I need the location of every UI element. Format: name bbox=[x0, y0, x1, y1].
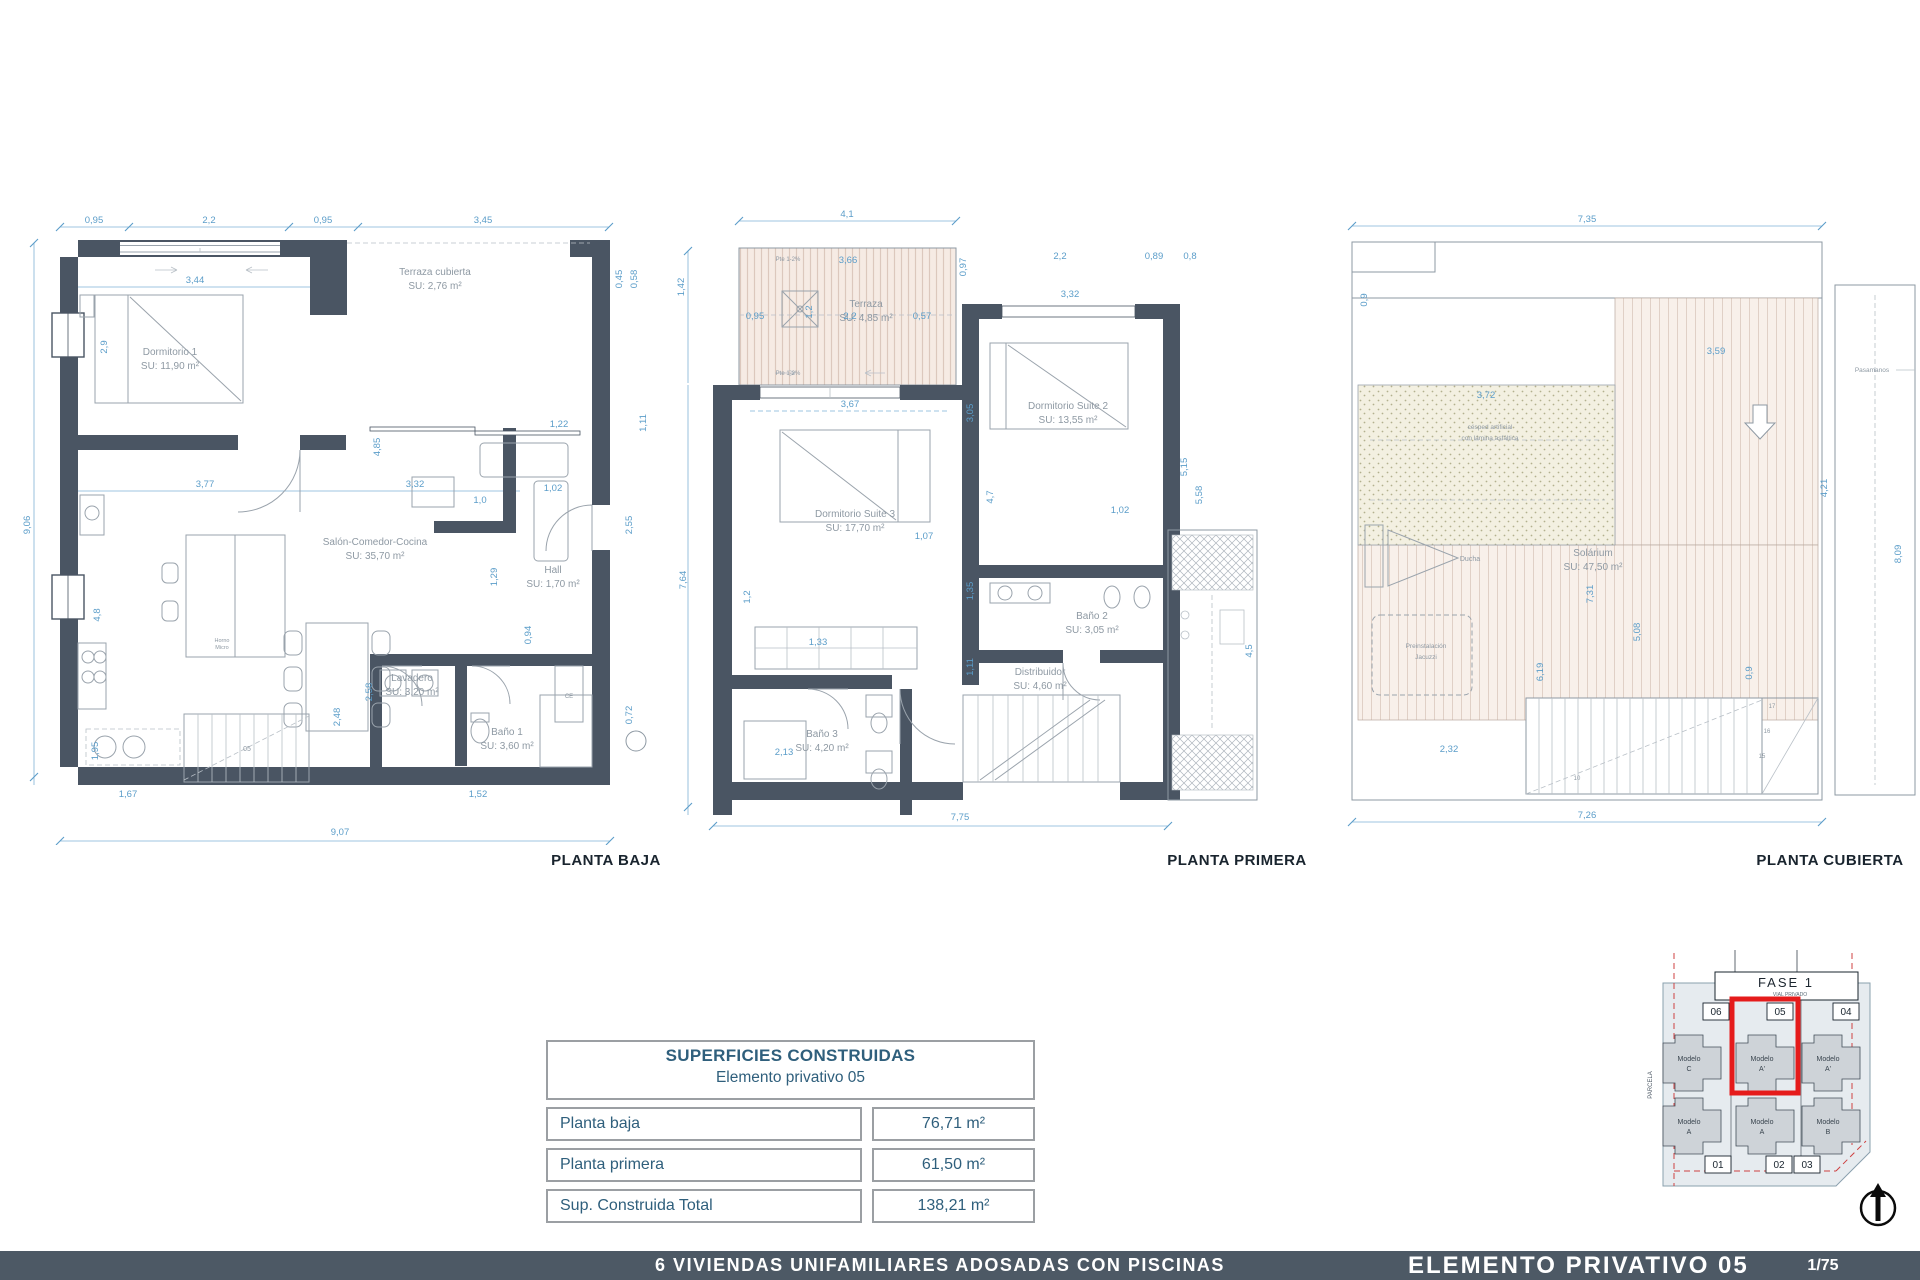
annotation-label: 0,95 bbox=[85, 215, 104, 226]
annotation-label: 10 bbox=[1574, 776, 1581, 782]
annotation-label: Preinstalación bbox=[1406, 643, 1447, 650]
svg-text:A': A' bbox=[1759, 1066, 1765, 1073]
row-label: Planta baja bbox=[546, 1107, 862, 1141]
table-row: Planta primera 61,50 m² bbox=[546, 1148, 1035, 1182]
row-value: 138,21 m² bbox=[872, 1189, 1035, 1223]
svg-text:Modelo: Modelo bbox=[1678, 1056, 1701, 1063]
annotation-label: 3,05 bbox=[965, 404, 976, 423]
title-bar: 6 VIVIENDAS UNIFAMILIARES ADOSADAS CON P… bbox=[0, 1251, 1920, 1280]
annotation-label: 1,29 bbox=[489, 568, 500, 587]
annotation-label: 0,94 bbox=[523, 626, 534, 645]
annotation-label: 3,67 bbox=[841, 399, 860, 410]
annotation-label: 4,85 bbox=[372, 438, 383, 457]
row-value: 61,50 m² bbox=[872, 1148, 1035, 1182]
drawing-sheet: { "plans": [ { "title": "PLANTA BAJA", "… bbox=[0, 0, 1920, 1280]
annotation-label: 4,1 bbox=[840, 209, 853, 220]
table-row: Sup. Construida Total 138,21 m² bbox=[546, 1189, 1035, 1223]
annotation-label: 5,15 bbox=[1179, 458, 1190, 477]
annotation-label: 4,8 bbox=[92, 608, 103, 621]
row-label: Sup. Construida Total bbox=[546, 1189, 862, 1223]
svg-text:05: 05 bbox=[1774, 1007, 1786, 1018]
room-area: SU: 47,50 m² bbox=[1564, 562, 1624, 573]
svg-text:Modelo: Modelo bbox=[1817, 1056, 1840, 1063]
areas-table-title: SUPERFICIES CONSTRUIDAS bbox=[548, 1046, 1033, 1066]
svg-text:Modelo: Modelo bbox=[1817, 1119, 1840, 1126]
annotation-label: césped artificial bbox=[1468, 424, 1513, 431]
room-label: Baño 3 bbox=[806, 729, 838, 740]
annotation-label: 7,75 bbox=[951, 812, 970, 823]
annotation-label: 0,8 bbox=[1183, 251, 1196, 262]
svg-text:A': A' bbox=[1825, 1066, 1831, 1073]
room-area: SU: 2,76 m² bbox=[408, 281, 462, 292]
annotation-label: Ducha bbox=[1460, 556, 1480, 563]
room-area: SU: 4,20 m² bbox=[795, 743, 849, 754]
annotation-label: 9,06 bbox=[22, 516, 33, 535]
svg-text:Modelo: Modelo bbox=[1751, 1056, 1774, 1063]
annotation-label: 1,35 bbox=[965, 582, 976, 601]
annotation-label: 0,58 bbox=[629, 270, 640, 289]
annotation-label: 0,95 bbox=[746, 311, 765, 322]
annotation-label: Micro bbox=[215, 645, 228, 651]
side-strip bbox=[1835, 285, 1915, 795]
annotation-label: 4,7 bbox=[985, 490, 996, 503]
annotation-label: 3,59 bbox=[1707, 346, 1726, 357]
room-label: Lavadero bbox=[391, 673, 433, 684]
svg-text:A: A bbox=[1760, 1129, 1765, 1136]
page-number: 1/75 bbox=[1788, 1251, 1858, 1280]
annotation-label: 16 bbox=[1764, 729, 1771, 735]
annotation-label: Pte 1-2% bbox=[776, 371, 801, 377]
svg-text:B: B bbox=[1826, 1129, 1831, 1136]
project-title: 6 VIVIENDAS UNIFAMILIARES ADOSADAS CON P… bbox=[540, 1251, 1340, 1280]
annotation-label: 2,2 bbox=[843, 311, 856, 322]
annotation-label: 0,72 bbox=[624, 706, 635, 725]
annotation-label: 1,07 bbox=[915, 531, 934, 542]
row-value: 76,71 m² bbox=[872, 1107, 1035, 1141]
annotation-label: 0,9 bbox=[1359, 293, 1370, 306]
annotation-label: 9,07 bbox=[331, 827, 350, 838]
annotation-label: 3,77 bbox=[196, 479, 215, 490]
room-label: Baño 2 bbox=[1076, 611, 1108, 622]
site-guides bbox=[1735, 950, 1797, 972]
room-area: SU: 35,70 m² bbox=[346, 551, 406, 562]
annotation-label: CE bbox=[565, 694, 573, 700]
floorplan-planta-cubierta: Solárium SU: 47,50 m² 7,350,93,723,594,2… bbox=[1340, 200, 1920, 850]
svg-text:03: 03 bbox=[1801, 1160, 1813, 1171]
annotation-label: Jacuzzi bbox=[1415, 654, 1437, 661]
annotation-label: 2,58 bbox=[364, 683, 375, 702]
annotation-label: 0,95 bbox=[314, 215, 333, 226]
room-label: Dormitorio Suite 2 bbox=[1028, 401, 1108, 412]
svg-text:Modelo: Modelo bbox=[1678, 1119, 1701, 1126]
room-label: Solárium bbox=[1573, 548, 1612, 559]
annotation-label: 8,09 bbox=[1893, 545, 1904, 564]
annotation-label: 7,35 bbox=[1578, 214, 1597, 225]
annotation-label: 17 bbox=[1769, 704, 1776, 710]
annotation-label: 7,31 bbox=[1585, 585, 1596, 604]
room-label: Terraza cubierta bbox=[399, 267, 471, 278]
stairs bbox=[963, 695, 1120, 782]
annotation-label: 2,32 bbox=[1440, 744, 1459, 755]
room-label: Distribuidor bbox=[1015, 667, 1066, 678]
annotation-label: 2,55 bbox=[624, 516, 635, 535]
annotation-label: 7,26 bbox=[1578, 810, 1597, 821]
plan-title-primera: PLANTA PRIMERA bbox=[1129, 852, 1345, 869]
annotation-label: 0,45 bbox=[614, 270, 625, 289]
room-area: SU: 17,70 m² bbox=[826, 523, 886, 534]
room-label: Terraza bbox=[849, 299, 883, 310]
annotation-label: 2,48 bbox=[332, 708, 343, 727]
annotation-label: 2,13 bbox=[775, 747, 794, 758]
annotation-label: 1,95 bbox=[90, 742, 101, 761]
annotation-label: 1,2 bbox=[804, 305, 815, 318]
annotation-label: 1,33 bbox=[809, 637, 828, 648]
room-area: SU: 1,70 m² bbox=[526, 579, 580, 590]
areas-table-header: SUPERFICIES CONSTRUIDAS Elemento privati… bbox=[546, 1040, 1035, 1100]
annotation-label: 15 bbox=[1759, 754, 1766, 760]
annotation-label: 1,0 bbox=[473, 495, 486, 506]
annotation-label: 5,08 bbox=[1632, 623, 1643, 642]
annotation-label: 1,02 bbox=[1111, 505, 1130, 516]
annotation-label: 4,5 bbox=[1244, 644, 1255, 657]
sheet-title: ELEMENTO PRIVATIVO 05 bbox=[1408, 1251, 1749, 1280]
annotation-label: Pte 1-2% bbox=[776, 257, 801, 263]
annotation-label: 0,97 bbox=[958, 258, 969, 277]
plot-numbers-top: 06 05 04 bbox=[1703, 1003, 1859, 1020]
room-area: SU: 3,20 m² bbox=[385, 687, 439, 698]
room-area: SU: 11,90 m² bbox=[141, 361, 200, 372]
annotation-label: 3,32 bbox=[406, 479, 425, 490]
annotation-label: 4,21 bbox=[1819, 479, 1830, 498]
annotation-label: 3,66 bbox=[839, 255, 858, 266]
room-area: SU: 13,55 m² bbox=[1039, 415, 1099, 426]
annotation-label: Horno bbox=[215, 638, 230, 644]
svg-text:06: 06 bbox=[1710, 1007, 1722, 1018]
table-row: Planta baja 76,71 m² bbox=[546, 1107, 1035, 1141]
row-label: Planta primera bbox=[546, 1148, 862, 1182]
annotation-label: con lámina asfáltica bbox=[1461, 435, 1518, 442]
annotation-label: 0,57 bbox=[913, 311, 932, 322]
annotation-label: 1,2 bbox=[742, 590, 753, 603]
annotation-label: 2,2 bbox=[202, 215, 215, 226]
annotation-label: 1,02 bbox=[544, 483, 563, 494]
annotation-label: 3,72 bbox=[1477, 390, 1496, 401]
room-label: Dormitorio Suite 3 bbox=[815, 509, 895, 520]
fase-label: FASE 1 bbox=[1758, 975, 1814, 990]
areas-table-subtitle: Elemento privativo 05 bbox=[548, 1069, 1033, 1087]
annotation-label: 1,22 bbox=[550, 419, 569, 430]
annotation-label: 1,67 bbox=[119, 789, 138, 800]
annotation-label: 2,9 bbox=[99, 340, 110, 353]
svg-text:02: 02 bbox=[1773, 1160, 1785, 1171]
annotation-label: 5,58 bbox=[1194, 486, 1205, 505]
utility-strip bbox=[1168, 530, 1257, 800]
plan-title-cubierta: PLANTA CUBIERTA bbox=[1745, 852, 1915, 869]
room-label: Hall bbox=[544, 565, 561, 576]
areas-table: SUPERFICIES CONSTRUIDAS Elemento privati… bbox=[546, 1040, 1035, 1223]
annotation-label: 3,32 bbox=[1061, 289, 1080, 300]
annotation-label: 1,42 bbox=[676, 278, 687, 297]
site-key-plan: FASE 1 VIAL PRIVADO 06 05 04 Modelo C Mo… bbox=[1640, 875, 1920, 1255]
annotation-label: 2,2 bbox=[1053, 251, 1066, 262]
svg-text:04: 04 bbox=[1840, 1007, 1852, 1018]
floorplan-planta-primera: Terraza SU: 4,85 m² Dormitorio Suite 3 S… bbox=[660, 195, 1310, 845]
annotation-label: 1,52 bbox=[469, 789, 488, 800]
svg-text:01: 01 bbox=[1712, 1160, 1724, 1171]
annotation-label: 6,19 bbox=[1535, 663, 1546, 682]
svg-text:Modelo: Modelo bbox=[1751, 1119, 1774, 1126]
parcela-label: PARCELA bbox=[1648, 1071, 1654, 1099]
room-label: Salón-Comedor-Cocina bbox=[323, 537, 428, 548]
svg-text:A: A bbox=[1687, 1129, 1692, 1136]
plan-title-baja: PLANTA BAJA bbox=[506, 852, 706, 869]
annotation-label: 1,11 bbox=[638, 414, 649, 432]
room-area: SU: 3,05 m² bbox=[1065, 625, 1119, 636]
room-area: SU: 4,60 m² bbox=[1013, 681, 1067, 692]
annotation-label: Pasamanos bbox=[1855, 367, 1890, 374]
annotation-label: 1,11 bbox=[965, 658, 976, 676]
north-compass-icon bbox=[1861, 1183, 1895, 1225]
annotation-label: 3,44 bbox=[186, 275, 205, 286]
annotation-label: 0,89 bbox=[1145, 251, 1164, 262]
annotation-label: 7,64 bbox=[678, 571, 689, 590]
room-label: Baño 1 bbox=[491, 727, 523, 738]
room-label: Dormitorio 1 bbox=[143, 347, 198, 358]
annotation-label: 3,45 bbox=[474, 215, 493, 226]
walls bbox=[60, 240, 610, 785]
floorplan-planta-baja: Dormitorio 1 SU: 11,90 m² Terraza cubier… bbox=[10, 195, 670, 845]
room-area: SU: 3,60 m² bbox=[480, 741, 534, 752]
annotation-label: 0,9 bbox=[1744, 666, 1755, 679]
annotation-label: 05 bbox=[243, 746, 251, 753]
svg-text:C: C bbox=[1686, 1066, 1691, 1073]
